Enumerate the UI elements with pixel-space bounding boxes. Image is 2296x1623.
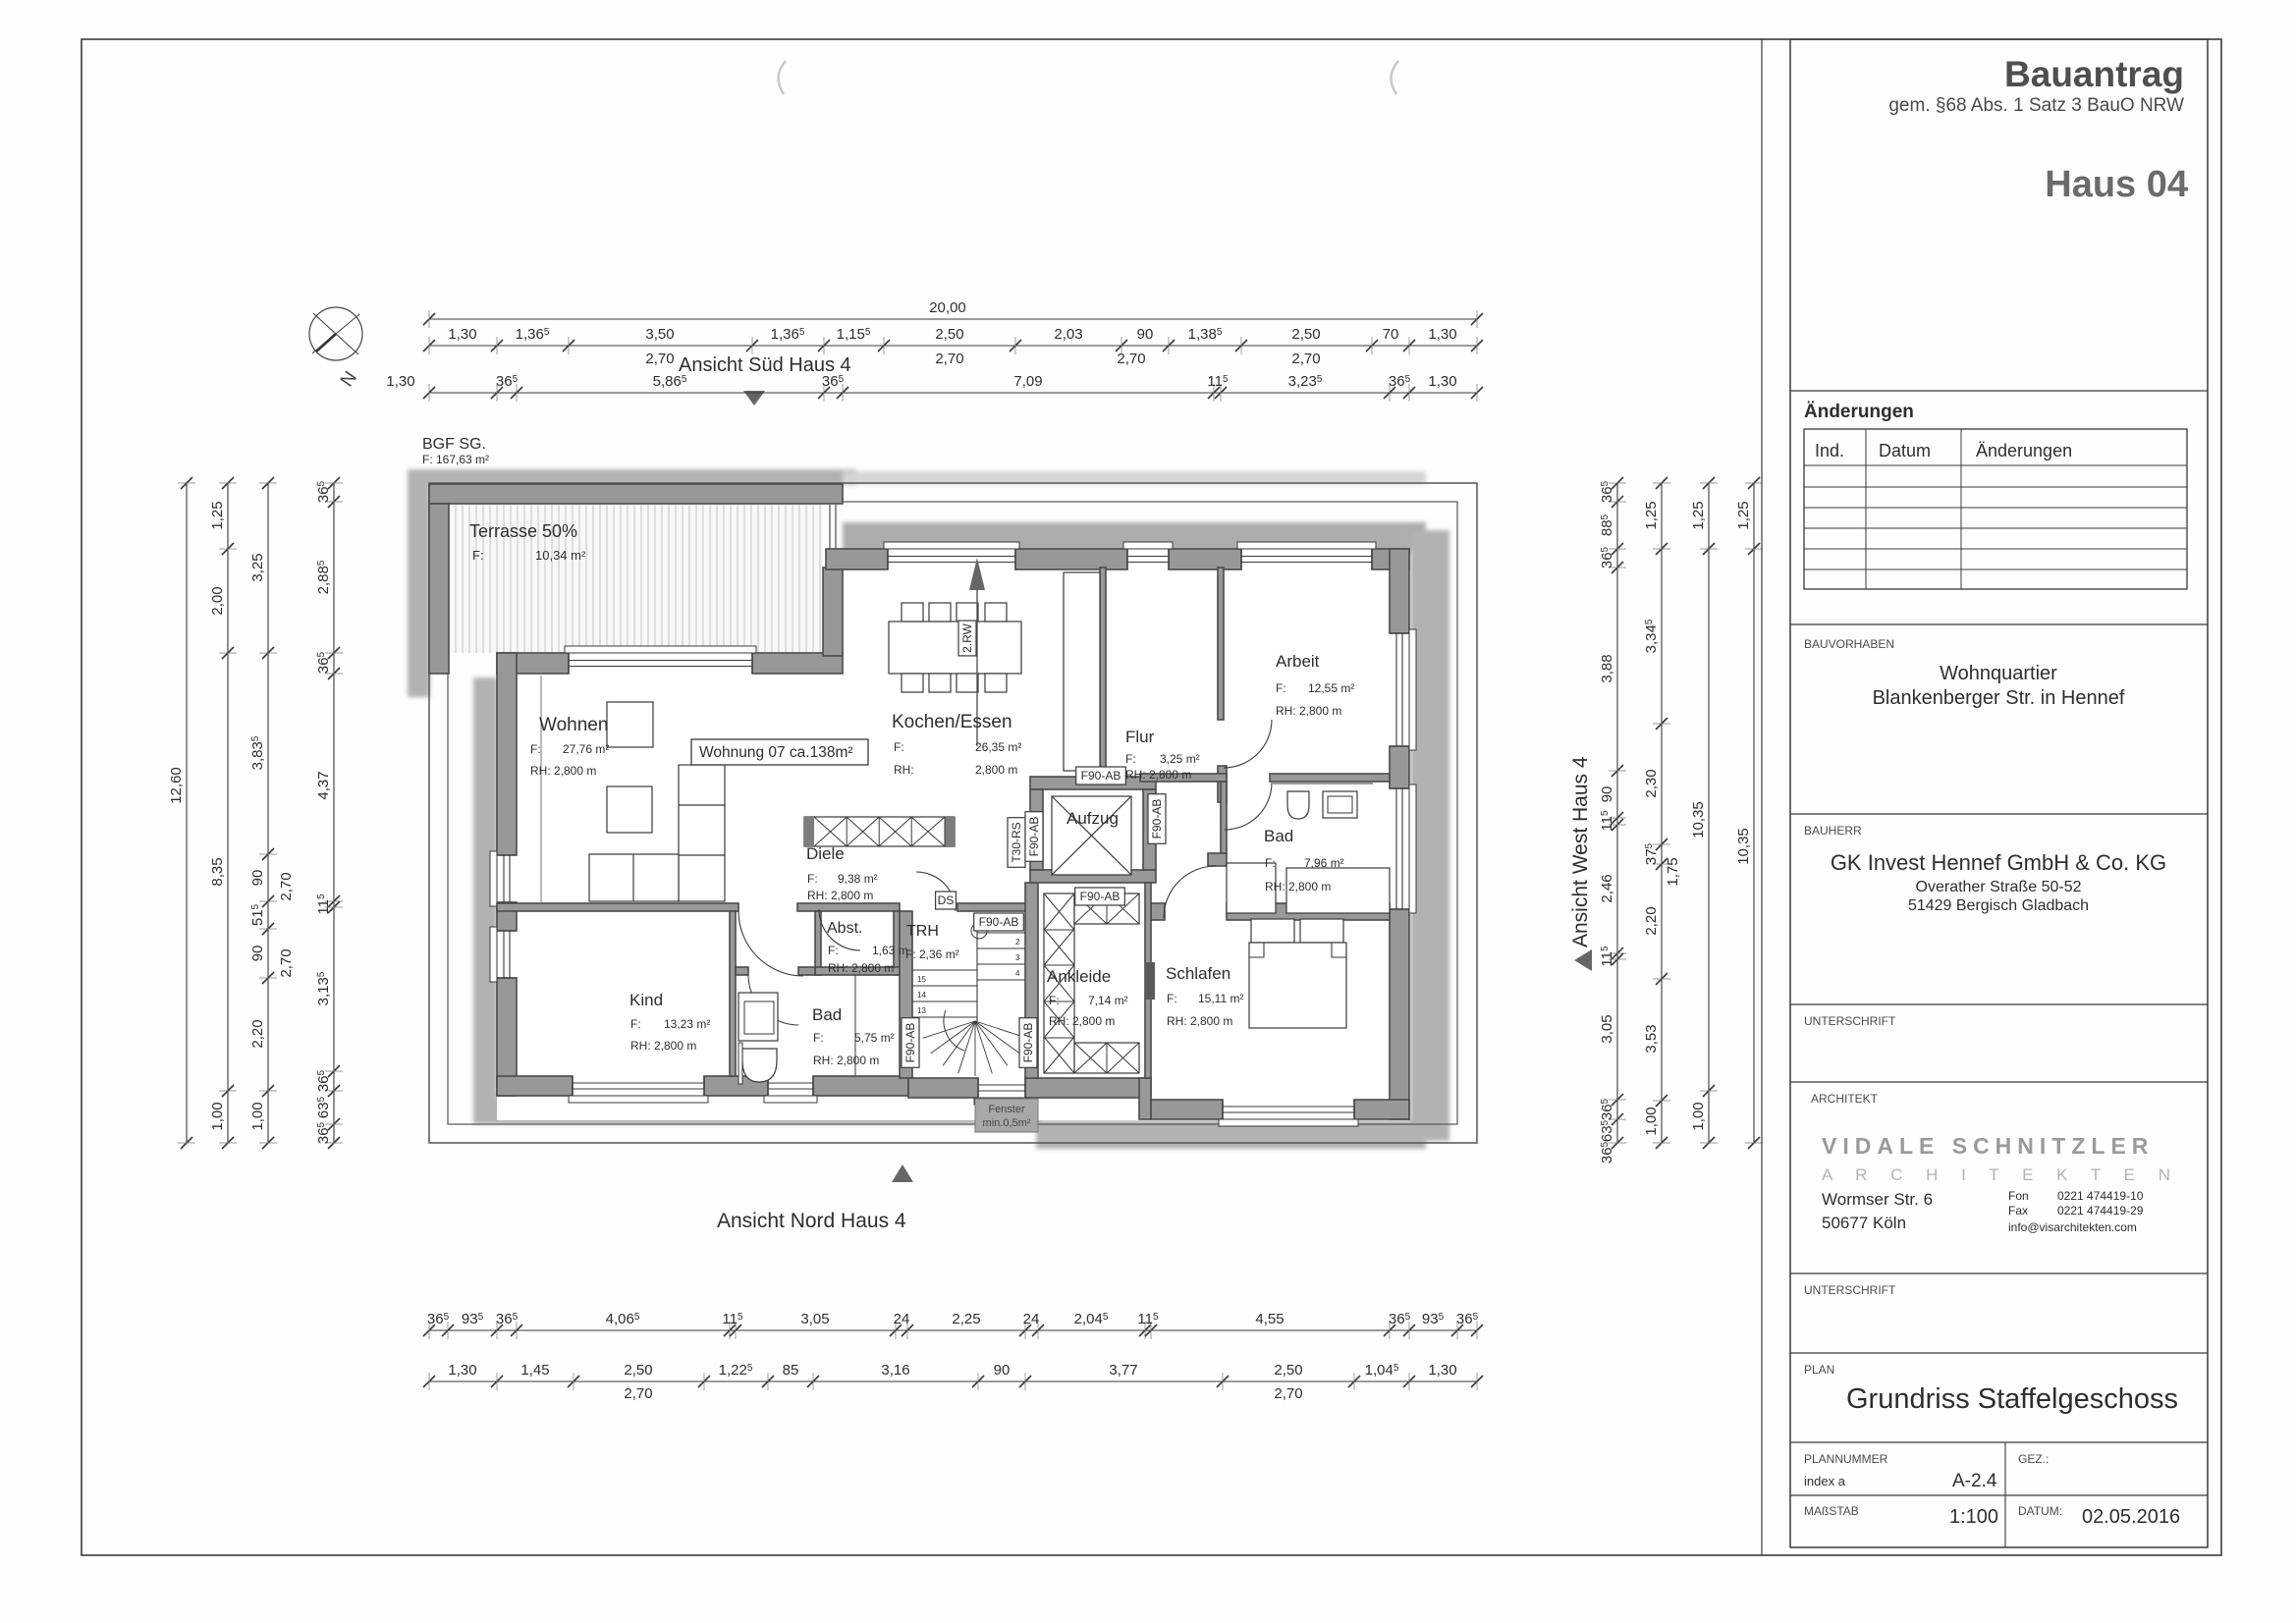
svg-text:12,60: 12,60 xyxy=(168,767,185,804)
svg-text:info@visarchitekten.com: info@visarchitekten.com xyxy=(2008,1220,2137,1234)
svg-text:RH: 2,800 m: RH: 2,800 m xyxy=(630,1039,696,1053)
svg-text:RH: 2,800 m: RH: 2,800 m xyxy=(813,1054,879,1067)
svg-text:3,88: 3,88 xyxy=(1599,654,1615,682)
svg-text:14: 14 xyxy=(917,991,926,1000)
svg-text:1,63 m: 1,63 m xyxy=(872,944,908,957)
svg-text:1,25: 1,25 xyxy=(1690,501,1707,529)
svg-text:27,76 m²: 27,76 m² xyxy=(563,742,609,756)
svg-text:2,50: 2,50 xyxy=(935,326,963,343)
svg-text:F:: F: xyxy=(472,548,484,563)
svg-text:Grundriss Staffelgeschoss: Grundriss Staffelgeschoss xyxy=(1846,1383,2178,1415)
svg-text:PLANNUMMER: PLANNUMMER xyxy=(1804,1452,1888,1466)
svg-text:GK Invest Hennef GmbH & Co. KG: GK Invest Hennef GmbH & Co. KG xyxy=(1831,850,2166,875)
svg-text:PLAN: PLAN xyxy=(1804,1363,1834,1377)
svg-text:2,00: 2,00 xyxy=(209,586,226,615)
svg-text:Wohnen: Wohnen xyxy=(539,715,608,735)
svg-text:Änderungen: Änderungen xyxy=(1804,402,1914,422)
svg-text:F:: F: xyxy=(1125,752,1136,766)
svg-text:85: 85 xyxy=(783,1362,799,1379)
svg-text:24: 24 xyxy=(894,1311,910,1327)
svg-text:1,00: 1,00 xyxy=(1690,1102,1707,1130)
svg-text:2,70: 2,70 xyxy=(935,351,963,367)
svg-text:RH: 2,800 m: RH: 2,800 m xyxy=(807,889,873,902)
svg-text:13,23 m²: 13,23 m² xyxy=(664,1017,710,1031)
svg-text:RH:: RH: xyxy=(894,763,914,777)
svg-text:1:100: 1:100 xyxy=(1949,1506,1998,1528)
svg-text:50677 Köln: 50677 Köln xyxy=(1822,1214,1906,1232)
svg-text:F:: F: xyxy=(813,1031,824,1045)
svg-text:15,11 m²: 15,11 m² xyxy=(1198,992,1243,1005)
svg-text:2,50: 2,50 xyxy=(1291,326,1320,343)
svg-text:RH: 2,800 m: RH: 2,800 m xyxy=(1167,1014,1232,1028)
svg-text:F:: F: xyxy=(828,944,839,957)
svg-text:Haus 04: Haus 04 xyxy=(2045,164,2188,205)
svg-text:gem. §68 Abs. 1 Satz 3 BauO N: gem. §68 Abs. 1 Satz 3 BauO NRW xyxy=(1888,95,2184,116)
svg-text:RH: 2,800 m: RH: 2,800 m xyxy=(530,764,596,778)
svg-text:3,25 m²: 3,25 m² xyxy=(1160,752,1200,766)
svg-text:Wohnung 07 ca.138m²: Wohnung 07 ca.138m² xyxy=(699,744,853,761)
svg-text:3,25: 3,25 xyxy=(249,553,266,581)
svg-text:2,20: 2,20 xyxy=(1643,906,1660,935)
svg-text:2,70: 2,70 xyxy=(278,872,295,900)
svg-text:Flur: Flur xyxy=(1125,728,1155,746)
svg-text:Ansicht Nord Haus 4: Ansicht Nord Haus 4 xyxy=(717,1210,906,1232)
svg-text:BAUHERR: BAUHERR xyxy=(1804,824,1862,838)
svg-text:ARCHITEKT: ARCHITEKT xyxy=(1811,1092,1879,1106)
svg-text:Overather Straße 50-52: Overather Straße 50-52 xyxy=(1916,879,2082,895)
svg-text:2,50: 2,50 xyxy=(624,1362,652,1379)
svg-text:2,46: 2,46 xyxy=(1599,874,1615,902)
svg-text:7,96 m²: 7,96 m² xyxy=(1304,856,1344,870)
svg-text:0221 474419-10: 0221 474419-10 xyxy=(2057,1189,2144,1203)
svg-text:Bauantrag: Bauantrag xyxy=(2004,54,2184,94)
svg-text:Kind: Kind xyxy=(629,991,663,1009)
svg-text:1,25: 1,25 xyxy=(1735,501,1752,529)
svg-text:F:: F: xyxy=(1265,856,1276,870)
svg-text:10,35: 10,35 xyxy=(1690,801,1707,839)
svg-text:2,03: 2,03 xyxy=(1054,326,1082,343)
svg-text:10,34 m²: 10,34 m² xyxy=(535,548,586,563)
svg-text:8,35: 8,35 xyxy=(209,857,226,886)
svg-text:RH: 2,800 m: RH: 2,800 m xyxy=(1125,768,1191,782)
svg-text:Ind.: Ind. xyxy=(1815,441,1844,460)
svg-text:MAßSTAB: MAßSTAB xyxy=(1804,1504,1859,1518)
svg-text:0221 474419-29: 0221 474419-29 xyxy=(2057,1204,2144,1217)
svg-text:index a: index a xyxy=(1804,1474,1846,1488)
svg-text:RH: 2,800 m: RH: 2,800 m xyxy=(828,961,894,975)
svg-text:1,25: 1,25 xyxy=(1643,501,1660,529)
svg-text:1,30: 1,30 xyxy=(1428,326,1456,343)
svg-text:1,45: 1,45 xyxy=(520,1362,549,1379)
svg-text:F: 2,36 m²: F: 2,36 m² xyxy=(905,947,959,961)
svg-text:Datum: Datum xyxy=(1879,441,1931,460)
svg-text:F:: F: xyxy=(807,872,818,886)
svg-text:90: 90 xyxy=(994,1362,1011,1379)
svg-text:F:: F: xyxy=(1049,994,1060,1007)
svg-text:1,00: 1,00 xyxy=(1643,1107,1660,1135)
svg-text:Fax: Fax xyxy=(2008,1204,2028,1217)
svg-text:GEZ.:: GEZ.: xyxy=(2018,1452,2049,1466)
svg-text:10,35: 10,35 xyxy=(1735,828,1752,865)
svg-text:Änderungen: Änderungen xyxy=(1976,441,2072,460)
svg-text:F90-AB: F90-AB xyxy=(1021,1023,1035,1063)
svg-text:4: 4 xyxy=(1015,969,1020,978)
svg-text:DS: DS xyxy=(938,893,955,907)
svg-text:2: 2 xyxy=(1015,938,1020,947)
svg-text:3,53: 3,53 xyxy=(1643,1024,1660,1053)
svg-text:UNTERSCHRIFT: UNTERSCHRIFT xyxy=(1804,1014,1896,1028)
svg-text:2,30: 2,30 xyxy=(1643,769,1660,797)
svg-text:Diele: Diele xyxy=(806,844,845,863)
svg-text:3,16: 3,16 xyxy=(881,1362,909,1379)
svg-text:1,30: 1,30 xyxy=(448,1362,476,1379)
svg-text:13: 13 xyxy=(917,1006,926,1015)
svg-text:DATUM:: DATUM: xyxy=(2018,1504,2062,1518)
svg-text:RH: 2,800 m: RH: 2,800 m xyxy=(1049,1014,1115,1028)
svg-text:F:: F: xyxy=(630,1017,641,1031)
svg-text:F90-AB: F90-AB xyxy=(1080,890,1121,903)
svg-text:F:: F: xyxy=(1276,681,1286,695)
svg-text:3,77: 3,77 xyxy=(1109,1362,1137,1379)
svg-text:2,70: 2,70 xyxy=(645,351,674,367)
svg-text:Arbeit: Arbeit xyxy=(1276,652,1320,671)
svg-text:2,70: 2,70 xyxy=(624,1385,652,1402)
svg-text:TRH: TRH xyxy=(906,923,939,940)
svg-text:7,14 m²: 7,14 m² xyxy=(1088,994,1128,1007)
svg-text:4,37: 4,37 xyxy=(315,771,332,799)
svg-text:3,05: 3,05 xyxy=(1599,1014,1615,1043)
svg-text:2,70: 2,70 xyxy=(278,948,295,977)
svg-text:F90-AB: F90-AB xyxy=(903,1023,917,1063)
svg-text:Fenster: Fenster xyxy=(988,1104,1025,1115)
svg-text:2,70: 2,70 xyxy=(1117,351,1145,367)
svg-text:2,50: 2,50 xyxy=(1274,1362,1302,1379)
svg-text:12,55 m²: 12,55 m² xyxy=(1308,681,1354,695)
svg-text:Wormser Str. 6: Wormser Str. 6 xyxy=(1822,1190,1933,1209)
svg-text:2,70: 2,70 xyxy=(1291,351,1320,367)
svg-text:Bad: Bad xyxy=(1264,827,1293,845)
svg-text:A-2.4: A-2.4 xyxy=(1952,1471,1997,1491)
svg-text:Terrasse 50%: Terrasse 50% xyxy=(469,521,577,541)
svg-text:9,38 m²: 9,38 m² xyxy=(838,872,878,886)
svg-text:Bad: Bad xyxy=(812,1005,842,1024)
svg-text:Blankenberger Str. in Hennef: Blankenberger Str. in Hennef xyxy=(1873,687,2125,709)
svg-text:5,75 m²: 5,75 m² xyxy=(854,1031,895,1045)
svg-text:90: 90 xyxy=(1599,786,1615,803)
svg-text:Schlafen: Schlafen xyxy=(1166,964,1230,983)
svg-text:F90-AB: F90-AB xyxy=(1027,817,1041,857)
svg-text:A R C H I T E K T E N: A R C H I T E K T E N xyxy=(1822,1165,2180,1184)
svg-text:2,25: 2,25 xyxy=(952,1311,980,1327)
svg-text:90: 90 xyxy=(1137,326,1154,343)
svg-text:90: 90 xyxy=(249,946,266,962)
svg-text:51429 Bergisch Gladbach: 51429 Bergisch Gladbach xyxy=(1908,897,2089,914)
svg-text:3: 3 xyxy=(1015,953,1020,962)
svg-text:Ankleide: Ankleide xyxy=(1047,967,1111,986)
svg-text:T30-RS: T30-RS xyxy=(1010,822,1023,862)
svg-text:2.RW: 2.RW xyxy=(960,622,974,652)
svg-text:4,55: 4,55 xyxy=(1255,1311,1284,1327)
svg-text:3,05: 3,05 xyxy=(800,1311,829,1327)
svg-text:UNTERSCHRIFT: UNTERSCHRIFT xyxy=(1804,1283,1896,1297)
svg-text:1,25: 1,25 xyxy=(209,501,226,529)
svg-text:Abst.: Abst. xyxy=(827,920,862,937)
svg-text:24: 24 xyxy=(1023,1311,1040,1327)
svg-text:1,30: 1,30 xyxy=(1428,1362,1456,1379)
svg-text:20,00: 20,00 xyxy=(929,299,966,316)
svg-text:F:: F: xyxy=(1167,992,1177,1005)
svg-text:BGF SG.: BGF SG. xyxy=(422,436,486,453)
svg-text:2,800 m: 2,800 m xyxy=(975,763,1017,777)
svg-text:BAUVORHABEN: BAUVORHABEN xyxy=(1804,637,1894,651)
svg-text:Kochen/Essen: Kochen/Essen xyxy=(892,712,1012,732)
svg-text:min.0,5m²: min.0,5m² xyxy=(983,1117,1031,1129)
svg-text:Ansicht West Haus 4: Ansicht West Haus 4 xyxy=(1569,756,1592,947)
svg-text:90: 90 xyxy=(249,870,266,887)
svg-text:26,35 m²: 26,35 m² xyxy=(975,740,1021,754)
svg-text:F:: F: xyxy=(894,740,904,754)
svg-text:1,30: 1,30 xyxy=(448,326,476,343)
svg-text:Wohnquartier: Wohnquartier xyxy=(1940,663,2057,684)
svg-text:VIDALE SCHNITZLER: VIDALE SCHNITZLER xyxy=(1822,1133,2154,1159)
svg-text:F:: F: xyxy=(530,742,541,756)
svg-text:3,50: 3,50 xyxy=(645,326,674,343)
svg-text:2,70: 2,70 xyxy=(1274,1385,1302,1402)
svg-text:Aufzug: Aufzug xyxy=(1066,809,1119,828)
svg-text:Fon: Fon xyxy=(2008,1189,2029,1203)
svg-text:1,30: 1,30 xyxy=(1428,373,1456,390)
svg-text:02.05.2016: 02.05.2016 xyxy=(2082,1506,2180,1528)
svg-text:7,09: 7,09 xyxy=(1013,373,1042,390)
svg-text:70: 70 xyxy=(1383,326,1399,343)
svg-text:15: 15 xyxy=(917,975,926,984)
svg-text:RH: 2,800 m: RH: 2,800 m xyxy=(1276,704,1341,718)
svg-text:F90-AB: F90-AB xyxy=(1081,769,1121,783)
svg-text:RH: 2,800 m: RH: 2,800 m xyxy=(1265,880,1331,893)
svg-text:F90-AB: F90-AB xyxy=(979,915,1019,929)
svg-text:1,30: 1,30 xyxy=(386,373,414,390)
svg-text:1,75: 1,75 xyxy=(1665,857,1681,886)
svg-text:F90-AB: F90-AB xyxy=(1150,799,1164,839)
svg-text:F: 167,63 m²: F: 167,63 m² xyxy=(422,453,489,466)
svg-text:1,00: 1,00 xyxy=(209,1102,226,1130)
svg-text:2,20: 2,20 xyxy=(249,1019,266,1048)
svg-text:1,00: 1,00 xyxy=(249,1102,266,1130)
